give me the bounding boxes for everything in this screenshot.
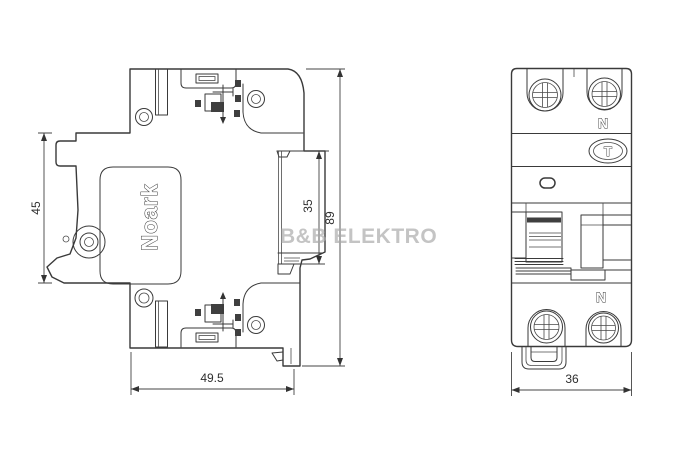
terminal-screw-icon bbox=[589, 313, 619, 343]
callout-marker bbox=[195, 309, 201, 316]
bottom-terminal bbox=[181, 328, 236, 347]
bottom-clamp-screw-detail bbox=[195, 292, 241, 336]
top-terminal bbox=[181, 69, 236, 88]
indicator-window bbox=[540, 178, 555, 188]
din-clip bbox=[522, 347, 566, 370]
callout-marker bbox=[235, 314, 241, 321]
toggle-levers bbox=[512, 203, 632, 280]
callout-marker bbox=[234, 299, 240, 306]
callout-marker bbox=[235, 80, 241, 87]
dimension-36: 36 bbox=[512, 352, 632, 396]
rivet-icon bbox=[248, 317, 265, 334]
bottom-slot bbox=[156, 301, 168, 347]
latch-hole bbox=[63, 236, 69, 242]
top-clamp-screw-detail bbox=[195, 80, 241, 124]
breaker-dimension-drawing: Noark 45 49.5 35 89 bbox=[0, 0, 681, 470]
callout-marker bbox=[234, 110, 240, 117]
rivets bbox=[63, 91, 265, 334]
dim-label-49-5: 49.5 bbox=[200, 371, 224, 385]
front-view: N T bbox=[512, 69, 632, 370]
terminal-screw-icon bbox=[531, 311, 563, 343]
terminal-screw-icon bbox=[529, 79, 561, 111]
rivet-icon bbox=[136, 109, 153, 126]
technical-drawing-page: Noark 45 49.5 35 89 bbox=[0, 0, 681, 470]
side-view-outline bbox=[47, 69, 325, 366]
neutral-label-bottom: N bbox=[596, 289, 606, 305]
brand-logo: Noark bbox=[137, 183, 162, 250]
rivet-icon bbox=[248, 91, 265, 108]
screw-pocket bbox=[587, 69, 622, 110]
test-button-label: T bbox=[604, 144, 612, 159]
screw-pocket bbox=[528, 310, 565, 347]
dimension-45: 45 bbox=[29, 133, 52, 283]
rivet-icon bbox=[135, 289, 153, 307]
callout-marker bbox=[235, 329, 241, 336]
side-view: Noark bbox=[47, 69, 325, 366]
toggle-lever-right bbox=[581, 215, 603, 268]
dim-label-35: 35 bbox=[301, 199, 315, 213]
neutral-label-top: N bbox=[598, 115, 608, 131]
callout-marker bbox=[235, 95, 241, 102]
top-slot bbox=[156, 69, 168, 115]
callout-marker bbox=[195, 100, 201, 107]
dim-label-45: 45 bbox=[29, 201, 43, 215]
front-view-outline bbox=[512, 69, 632, 347]
bottom-foot bbox=[272, 348, 291, 364]
dim-label-36: 36 bbox=[565, 372, 579, 386]
side-panel bbox=[73, 167, 181, 284]
dimension-49-5: 49.5 bbox=[131, 352, 294, 395]
test-button: T bbox=[589, 139, 627, 163]
dim-label-89: 89 bbox=[323, 211, 337, 225]
terminal-screw-icon bbox=[589, 78, 621, 110]
din-rail-recess bbox=[277, 151, 322, 274]
dimension-89: 89 bbox=[302, 69, 345, 366]
rivet-icon bbox=[80, 233, 98, 251]
watermark: B&B ELEKTRO bbox=[280, 225, 437, 248]
